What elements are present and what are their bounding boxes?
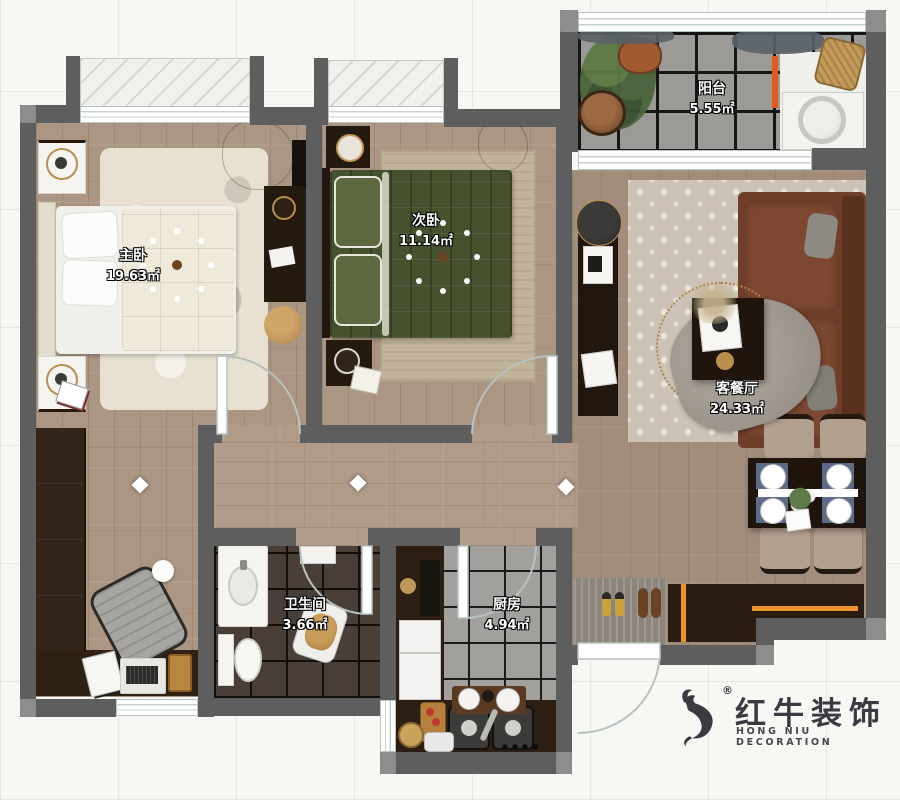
- second-door-arc: [472, 356, 552, 434]
- second-door-leaf: [547, 356, 557, 434]
- room-area: 11.14㎡: [399, 235, 453, 249]
- room-label-master-bedroom: 主卧 19.63㎡: [106, 249, 160, 283]
- entry-door-leaf: [578, 643, 660, 659]
- room-label-second-bedroom: 次卧 11.14㎡: [399, 214, 453, 248]
- room-name: 主卧: [106, 249, 160, 264]
- room-area: 4.94㎡: [484, 619, 529, 633]
- registered-mark: ®: [722, 684, 733, 697]
- room-name: 阳台: [689, 82, 734, 97]
- room-label-kitchen: 厨房 4.94㎡: [484, 598, 529, 632]
- room-label-living-dining: 客餐厅 24.33㎡: [710, 382, 764, 416]
- room-label-bathroom: 卫生间 3.66㎡: [282, 598, 327, 632]
- room-area: 3.66㎡: [282, 619, 327, 633]
- bathroom-door-leaf: [362, 546, 372, 614]
- room-name: 次卧: [399, 214, 453, 229]
- bull-logo-icon: [662, 686, 726, 748]
- master-ceiling-light: [172, 260, 182, 270]
- room-area: 19.63㎡: [106, 270, 160, 284]
- kitchen-door-leaf: [458, 546, 468, 618]
- master-door-leaf: [217, 356, 227, 434]
- floor-plan-canvas: 主卧 19.63㎡ 次卧 11.14㎡ 阳台 5.55㎡ 客餐厅 24.33㎡ …: [0, 0, 900, 800]
- brand-subtitle: HONG NIU DECORATION: [736, 726, 900, 748]
- second-ceiling-light: [438, 252, 448, 262]
- room-name: 客餐厅: [710, 382, 764, 397]
- entry-door-arc: [578, 651, 660, 733]
- room-area: 24.33㎡: [710, 403, 764, 417]
- room-name: 卫生间: [282, 598, 327, 613]
- room-area: 5.55㎡: [689, 103, 734, 117]
- room-label-balcony: 阳台 5.55㎡: [689, 82, 734, 116]
- room-name: 厨房: [484, 598, 529, 613]
- door-swing-overlay: [0, 0, 900, 800]
- master-door-arc: [222, 356, 300, 434]
